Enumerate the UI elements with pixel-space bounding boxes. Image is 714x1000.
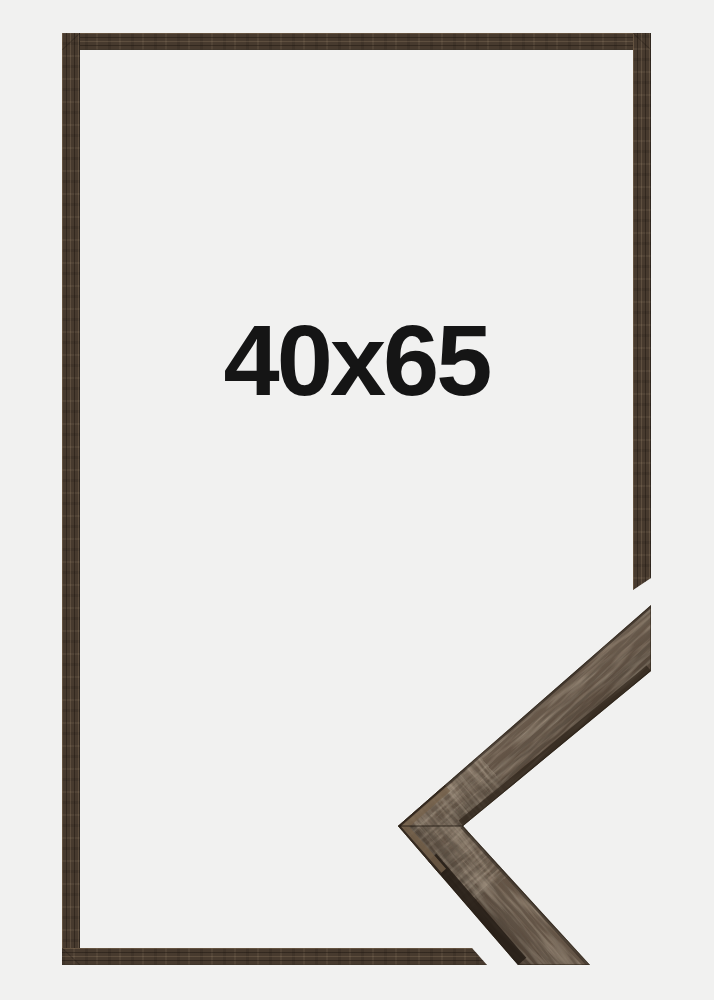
frame-corner-detail <box>0 0 714 1000</box>
product-image-canvas: 40x65 <box>0 0 714 1000</box>
frame-corner-closeup <box>301 501 714 1000</box>
corner-detail-grain-upper <box>301 501 714 930</box>
